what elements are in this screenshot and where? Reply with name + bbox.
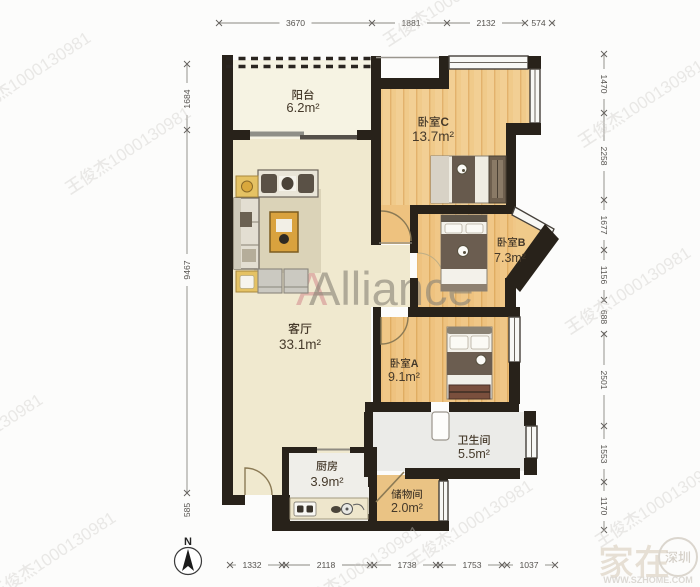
svg-text:6.2m²: 6.2m² <box>286 100 320 115</box>
svg-text:C: C <box>441 116 450 129</box>
svg-text:B: B <box>518 237 526 249</box>
svg-text:A: A <box>411 358 419 370</box>
svg-text:1677: 1677 <box>599 215 609 234</box>
svg-text:7.3m²: 7.3m² <box>494 251 526 265</box>
svg-text:9.1m²: 9.1m² <box>388 370 420 384</box>
svg-text:2501: 2501 <box>599 370 609 389</box>
svg-text:1738: 1738 <box>397 560 416 570</box>
svg-text:1553: 1553 <box>599 444 609 463</box>
svg-text:3670: 3670 <box>286 18 305 28</box>
svg-text:1470: 1470 <box>599 74 609 93</box>
svg-text:3.9m²: 3.9m² <box>310 474 344 489</box>
svg-text:1156: 1156 <box>599 266 609 285</box>
svg-text:WWW.SZHOME.COM: WWW.SZHOME.COM <box>603 575 693 585</box>
svg-text:1753: 1753 <box>462 560 481 570</box>
svg-text:2132: 2132 <box>476 18 495 28</box>
svg-text:33.1m²: 33.1m² <box>279 337 322 352</box>
svg-text:2118: 2118 <box>317 560 336 570</box>
svg-text:1332: 1332 <box>242 560 261 570</box>
svg-text:2.0m²: 2.0m² <box>391 501 423 515</box>
svg-text:N: N <box>184 536 192 548</box>
svg-text:1170: 1170 <box>599 497 609 516</box>
svg-text:5.5m²: 5.5m² <box>458 447 490 461</box>
svg-text:2258: 2258 <box>599 146 609 165</box>
svg-text:1037: 1037 <box>519 560 538 570</box>
svg-text:574: 574 <box>531 18 546 28</box>
svg-text:585: 585 <box>182 503 192 518</box>
svg-text:13.7m²: 13.7m² <box>412 129 455 144</box>
svg-text:9467: 9467 <box>182 260 192 279</box>
